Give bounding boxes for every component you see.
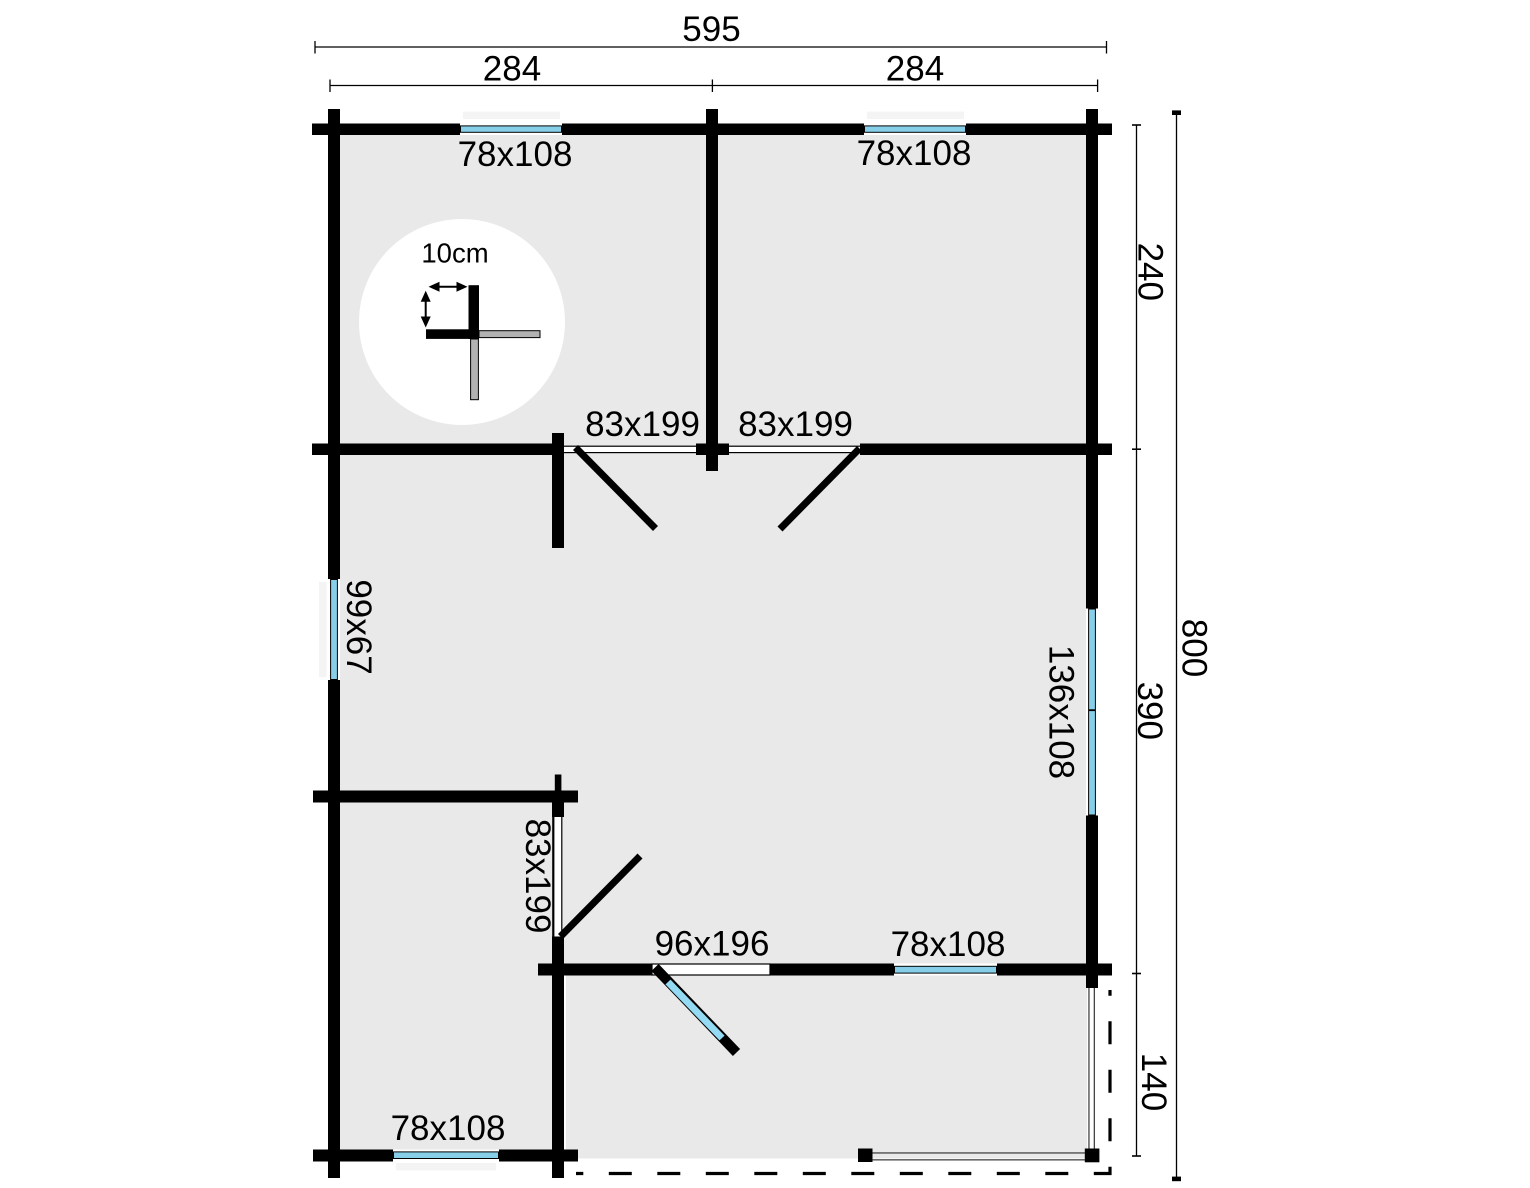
svg-text:284: 284	[483, 50, 541, 89]
svg-text:800: 800	[1175, 619, 1214, 677]
svg-text:136x108: 136x108	[1042, 645, 1081, 779]
svg-text:99x67: 99x67	[339, 579, 378, 674]
svg-text:78x108: 78x108	[458, 135, 573, 174]
svg-text:10cm: 10cm	[421, 238, 488, 269]
svg-text:96x196: 96x196	[655, 925, 770, 964]
svg-text:390: 390	[1130, 682, 1169, 740]
svg-text:284: 284	[886, 50, 944, 89]
svg-text:78x108: 78x108	[891, 925, 1006, 964]
svg-text:240: 240	[1131, 243, 1170, 301]
svg-text:140: 140	[1134, 1053, 1173, 1111]
svg-text:83x199: 83x199	[518, 819, 557, 934]
svg-text:78x108: 78x108	[857, 134, 972, 173]
svg-text:83x199: 83x199	[585, 405, 700, 444]
svg-text:83x199: 83x199	[738, 405, 853, 444]
svg-text:78x108: 78x108	[391, 1109, 506, 1148]
svg-text:595: 595	[682, 10, 740, 49]
